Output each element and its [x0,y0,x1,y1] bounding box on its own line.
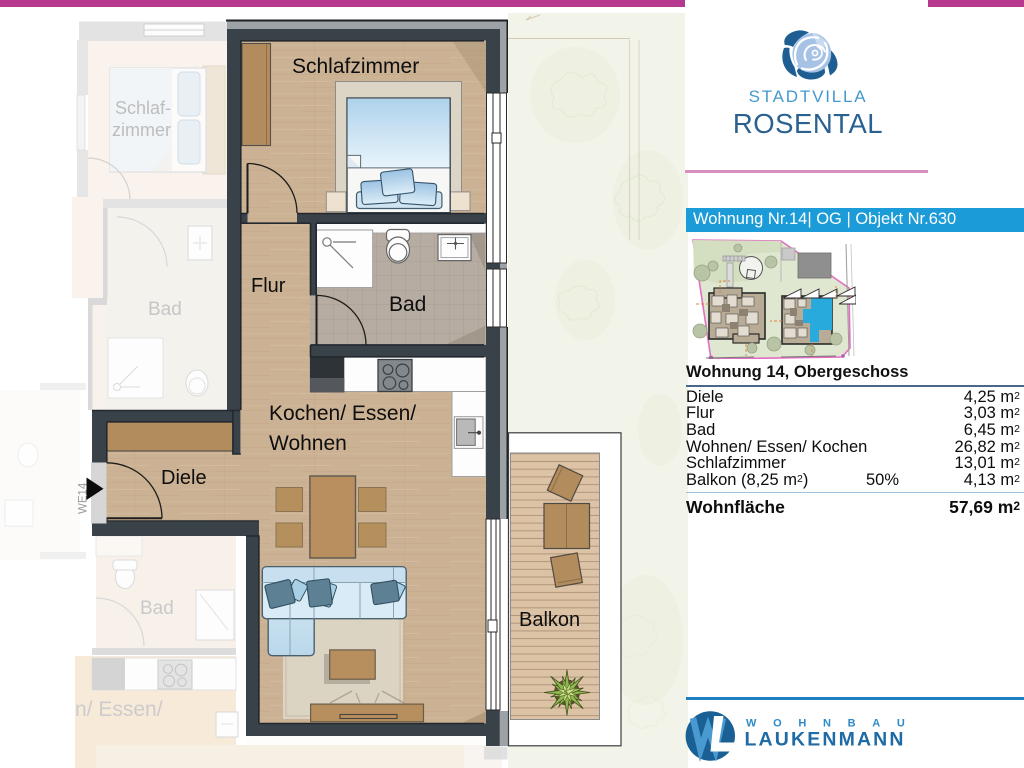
svg-text:STADTVILLA: STADTVILLA [749,87,868,106]
svg-text:zimmer: zimmer [112,120,171,140]
svg-text:Schlaf-: Schlaf- [115,98,171,118]
svg-text:n/ Essen/: n/ Essen/ [75,698,163,721]
svg-text:Balkon: Balkon [519,609,580,631]
svg-text:Flur: Flur [251,275,286,297]
svg-text:Wohnen: Wohnen [269,432,347,455]
svg-text:Bad: Bad [148,299,182,320]
svg-text:Kochen/ Essen/: Kochen/ Essen/ [269,402,416,425]
svg-text:ROSENTAL: ROSENTAL [733,108,883,139]
svg-text:Bad: Bad [140,598,174,619]
svg-text:WE14: WE14 [78,482,90,514]
svg-text:Diele: Diele [161,467,207,489]
svg-text:LAUKENMANN: LAUKENMANN [745,729,904,751]
svg-text:Schlafzimmer: Schlafzimmer [292,55,419,78]
svg-text:Bad: Bad [389,293,426,316]
